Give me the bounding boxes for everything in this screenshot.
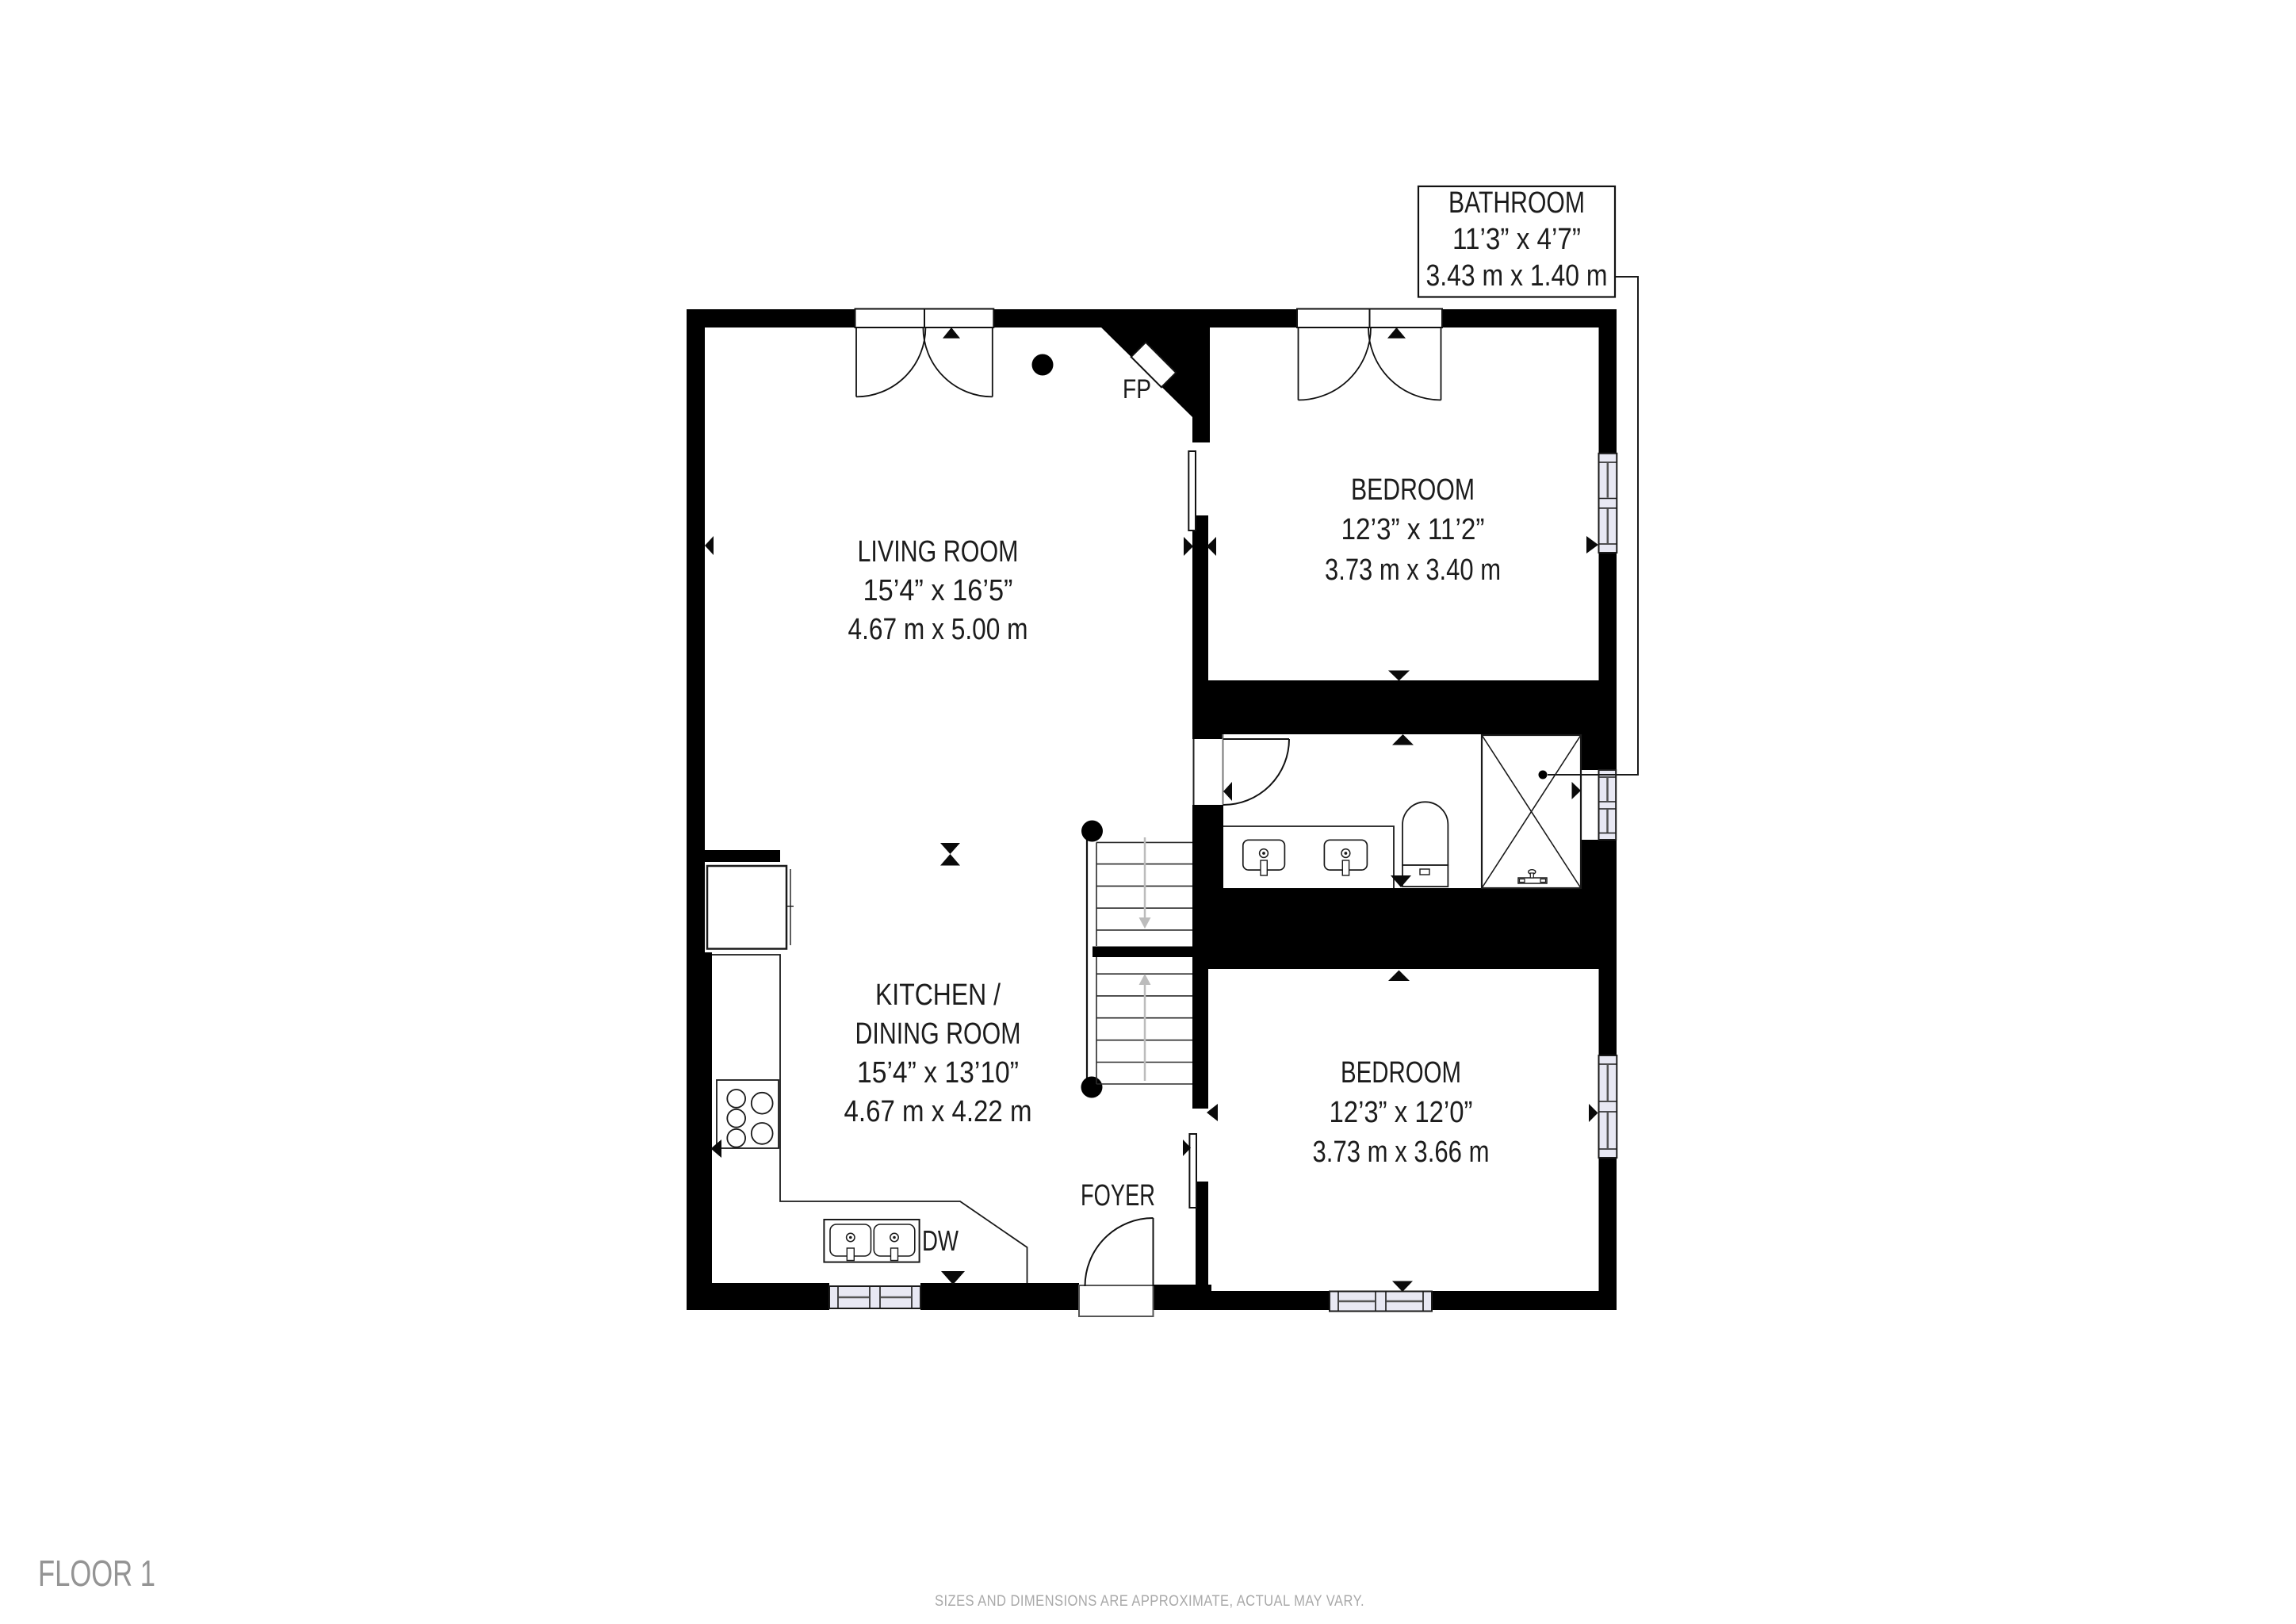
- svg-text:KITCHEN /: KITCHEN /: [875, 979, 1001, 1012]
- svg-text:3.73 m x 3.40 m: 3.73 m x 3.40 m: [1325, 553, 1501, 587]
- svg-text:BEDROOM: BEDROOM: [1351, 473, 1475, 507]
- svg-text:12’3” x 12’0”: 12’3” x 12’0”: [1330, 1096, 1473, 1129]
- svg-text:FLOOR 1: FLOOR 1: [38, 1553, 155, 1594]
- svg-text:11’3” x 4’7”: 11’3” x 4’7”: [1452, 223, 1581, 256]
- svg-text:12’3” x 11’2”: 12’3” x 11’2”: [1341, 513, 1485, 546]
- svg-text:4.67 m x 4.22 m: 4.67 m x 4.22 m: [844, 1095, 1032, 1128]
- svg-text:15’4” x 16’5”: 15’4” x 16’5”: [863, 574, 1013, 607]
- svg-text:BEDROOM: BEDROOM: [1341, 1056, 1461, 1090]
- svg-text:DW: DW: [922, 1224, 959, 1257]
- svg-text:SIZES AND DIMENSIONS ARE APPRO: SIZES AND DIMENSIONS ARE APPROXIMATE, AC…: [935, 1593, 1364, 1610]
- svg-text:FOYER: FOYER: [1081, 1179, 1155, 1212]
- svg-text:15’4” x 13’10”: 15’4” x 13’10”: [857, 1056, 1019, 1090]
- svg-text:FP: FP: [1123, 374, 1151, 404]
- svg-text:BATHROOM: BATHROOM: [1448, 186, 1585, 220]
- svg-text:LIVING ROOM: LIVING ROOM: [858, 535, 1019, 569]
- svg-text:3.73 m x 3.66 m: 3.73 m x 3.66 m: [1313, 1136, 1490, 1169]
- svg-text:4.67 m x 5.00 m: 4.67 m x 5.00 m: [848, 613, 1028, 646]
- svg-text:3.43 m x 1.40 m: 3.43 m x 1.40 m: [1426, 259, 1608, 293]
- svg-text:DINING ROOM: DINING ROOM: [855, 1017, 1021, 1051]
